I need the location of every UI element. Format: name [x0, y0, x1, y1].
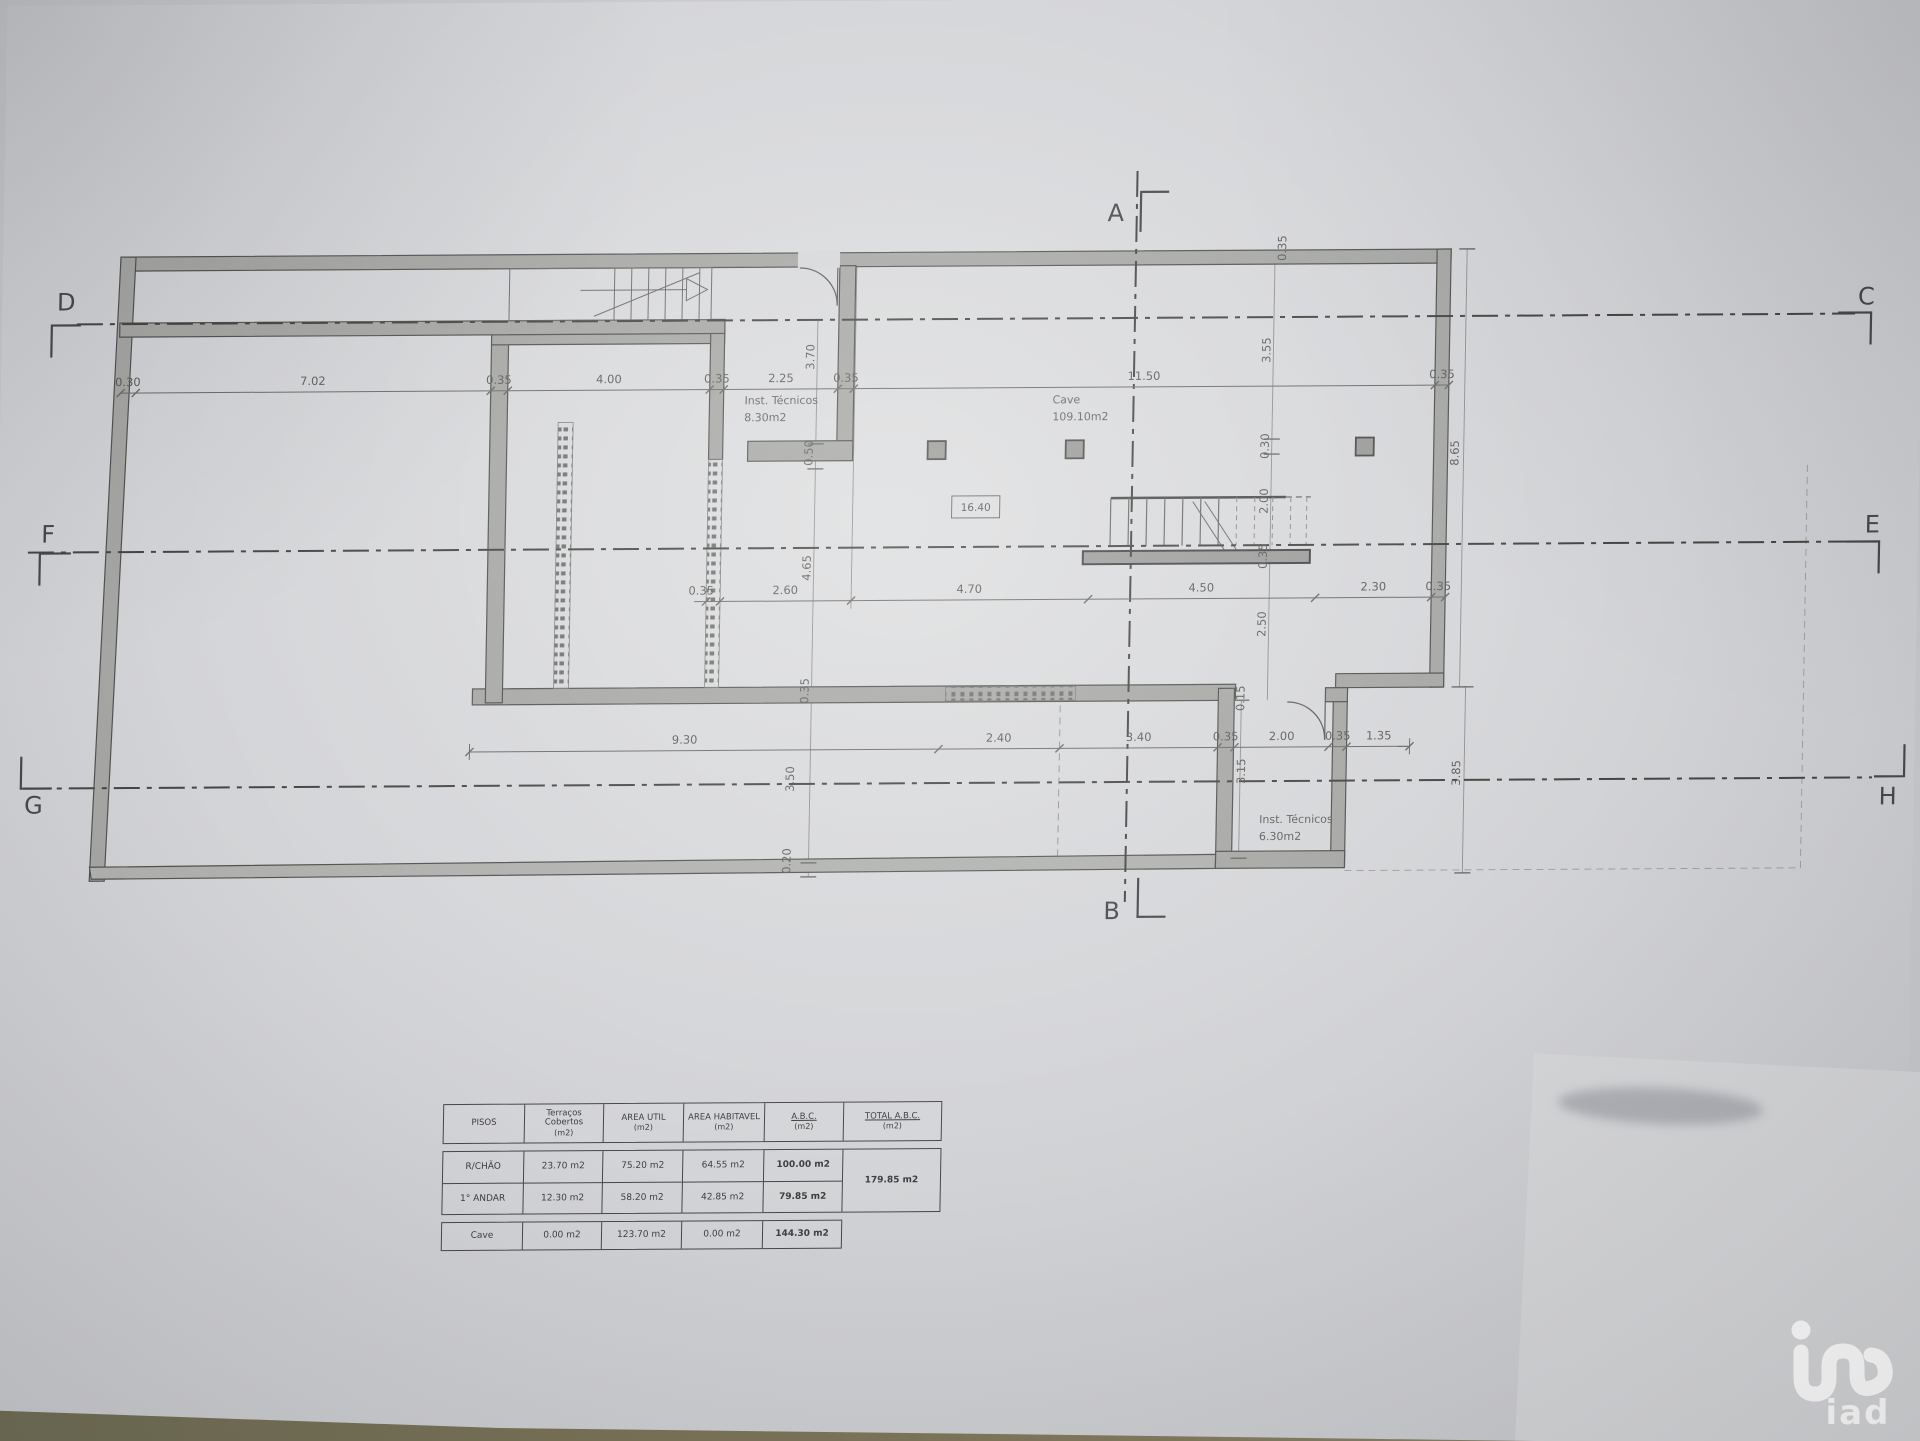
iad-logo-dot-icon	[1792, 1321, 1811, 1340]
dimension-label: 3.40	[1126, 730, 1152, 744]
dimension-label: 4.65	[799, 555, 813, 581]
table-header-cell: A.B.C.(m2)	[764, 1103, 844, 1141]
dimension-label: 4.00	[596, 372, 622, 386]
table-cell: 23.70 m2	[523, 1151, 603, 1182]
room1-name: Inst. Técnicos	[744, 394, 818, 407]
dimension-label: 0.35	[486, 373, 512, 387]
wall-block-bottom	[1215, 851, 1344, 869]
dimension-label: 3.85	[1449, 760, 1463, 786]
table-header-cell: AREA HABITAVEL(m2)	[683, 1103, 765, 1141]
table-cell: 0.00 m2	[681, 1221, 762, 1248]
dimension-label: 2.25	[768, 371, 794, 385]
dimension-label: 0.35	[688, 583, 714, 597]
level-label: 16.40	[961, 502, 991, 514]
dimension-label: 3.50	[783, 766, 797, 792]
table-cell-total-abc: 179.85 m2	[841, 1149, 940, 1212]
table-cell: 1° ANDAR	[442, 1183, 523, 1214]
column-icon	[1066, 440, 1084, 458]
wall-step-east	[1336, 673, 1444, 688]
room2-area: 6.30m2	[1259, 830, 1301, 843]
dimension-label: 0.35	[1429, 367, 1455, 381]
door-opening-gap	[798, 251, 840, 268]
wall-block-stub	[1325, 688, 1347, 702]
stair-landing-beam	[1083, 550, 1310, 564]
dimension-label: 0.50	[801, 440, 815, 466]
dimension-label: 8.65	[1447, 440, 1461, 466]
dimension-label: 0.30	[1258, 433, 1272, 459]
iad-watermark: iad	[1780, 1306, 1912, 1432]
dimension-label: 0.35	[1275, 235, 1289, 261]
section-marker-a: A	[1107, 199, 1124, 227]
areas-table-header: PISOS Terraços Cobertos(m2) AREA UTIL(m2…	[443, 1101, 943, 1144]
table-cell: 123.70 m2	[601, 1222, 681, 1249]
dimension-label: 3.15	[1234, 758, 1248, 784]
table-header-cell: Terraços Cobertos(m2)	[524, 1104, 604, 1142]
dimension-label: 0.35	[833, 371, 859, 385]
dimension-label: 0.35	[1425, 579, 1451, 593]
photographed-floor-plan: A B C D E F G H 0.30 7.02 0.35	[0, 0, 1920, 1441]
dimension-label: 0.20	[779, 848, 793, 874]
table-header-cell: TOTAL A.B.C.(m2)	[843, 1102, 942, 1141]
wall-block-right	[1330, 688, 1347, 866]
table-cell: 0.00 m2	[522, 1222, 601, 1249]
table-header-cell: PISOS	[444, 1105, 525, 1143]
section-marker-h: H	[1878, 782, 1897, 810]
dimension-label: 11.50	[1127, 369, 1160, 383]
section-marker-d: D	[57, 288, 76, 316]
dimension-label: 4.70	[956, 582, 982, 596]
iad-watermark-text: iad	[1826, 1393, 1891, 1432]
dimension-label: 7.02	[300, 374, 326, 388]
iad-logo-glyph-icon	[1801, 1351, 1885, 1394]
table-cell: 42.85 m2	[681, 1181, 763, 1212]
room2-name: Inst. Técnicos	[1259, 813, 1333, 826]
wall-stair-interior	[120, 319, 725, 337]
dimension-label: 9.30	[672, 733, 698, 747]
dimension-label: 2.60	[772, 583, 798, 597]
table-cell: R/CHÃO	[443, 1152, 524, 1183]
section-marker-c: C	[1858, 282, 1875, 310]
dimension-label: 2.50	[1254, 611, 1268, 637]
areas-table: PISOS Terraços Cobertos(m2) AREA UTIL(m2…	[441, 1101, 954, 1254]
dimension-label: 2.30	[1360, 579, 1386, 593]
table-cell: Cave	[442, 1223, 522, 1250]
dimension-label: 0.35	[1213, 729, 1239, 743]
table-cell: 79.85 m2	[762, 1181, 842, 1212]
dimension-label: 0.35	[1325, 729, 1351, 743]
dimension-label: 0.35	[704, 371, 730, 385]
areas-table-main-rows: R/CHÃO 23.70 m2 75.20 m2 64.55 m2 100.00…	[441, 1148, 941, 1215]
table-header-cell: AREA UTIL(m2)	[603, 1104, 684, 1142]
wall-block-left	[1215, 688, 1234, 866]
dimension-label: 0.35	[1256, 543, 1270, 569]
column-icon	[928, 441, 946, 459]
table-cell: 64.55 m2	[682, 1150, 764, 1181]
wall-room1-right	[837, 266, 856, 456]
areas-table-cave-row: Cave 0.00 m2 123.70 m2 0.00 m2 144.30 m2	[441, 1220, 843, 1251]
table-cell: 144.30 m2	[762, 1221, 841, 1248]
dimension-label: 0.15	[1233, 685, 1247, 711]
section-marker-f: F	[41, 521, 55, 549]
dimension-label: 2.00	[1269, 729, 1295, 743]
dimension-label: 2.00	[1257, 488, 1271, 514]
dimension-label: 3.70	[803, 344, 817, 370]
section-marker-g: G	[24, 792, 43, 820]
table-cell: 100.00 m2	[763, 1150, 843, 1181]
cave-name: Cave	[1052, 393, 1080, 406]
dimension-label: 2.40	[986, 731, 1012, 745]
column-icon	[1356, 437, 1374, 455]
section-marker-b: B	[1103, 897, 1120, 925]
table-cell: 12.30 m2	[522, 1182, 602, 1213]
dimension-label: 3.55	[1259, 337, 1273, 363]
dimension-label: 4.50	[1188, 580, 1214, 594]
room1-area: 8.30m2	[744, 411, 786, 424]
table-cell: 58.20 m2	[601, 1182, 682, 1213]
section-marker-e: E	[1865, 510, 1881, 538]
dimension-label: 0.30	[115, 375, 141, 389]
dimension-label: 1.35	[1366, 728, 1392, 742]
dimension-label: 0.35	[797, 678, 811, 704]
cave-area: 109.10m2	[1052, 410, 1108, 423]
hatched-wall-3	[945, 686, 1075, 701]
table-cell: 75.20 m2	[602, 1151, 683, 1182]
wall-room1-bottom	[747, 441, 852, 462]
